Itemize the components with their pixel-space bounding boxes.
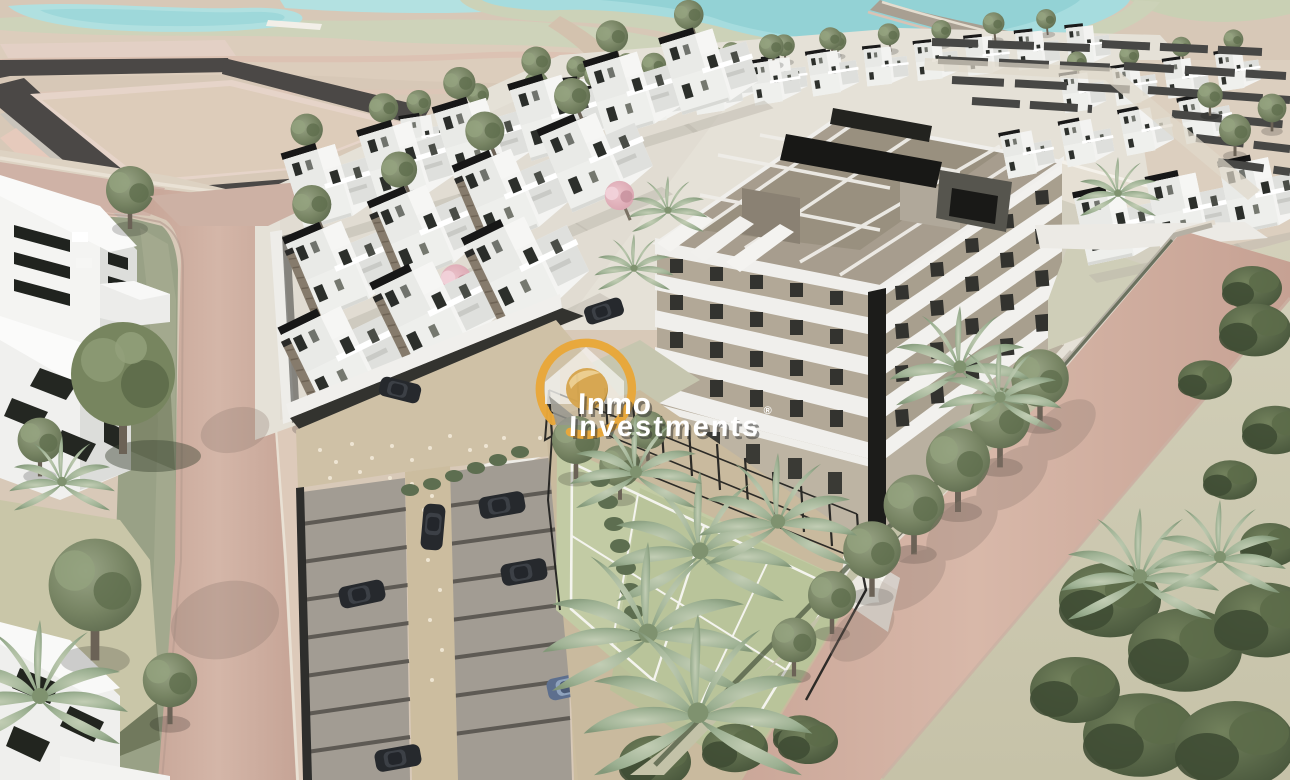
svg-text:Investments: Investments [569, 411, 761, 443]
svg-text:®: ® [763, 405, 772, 417]
